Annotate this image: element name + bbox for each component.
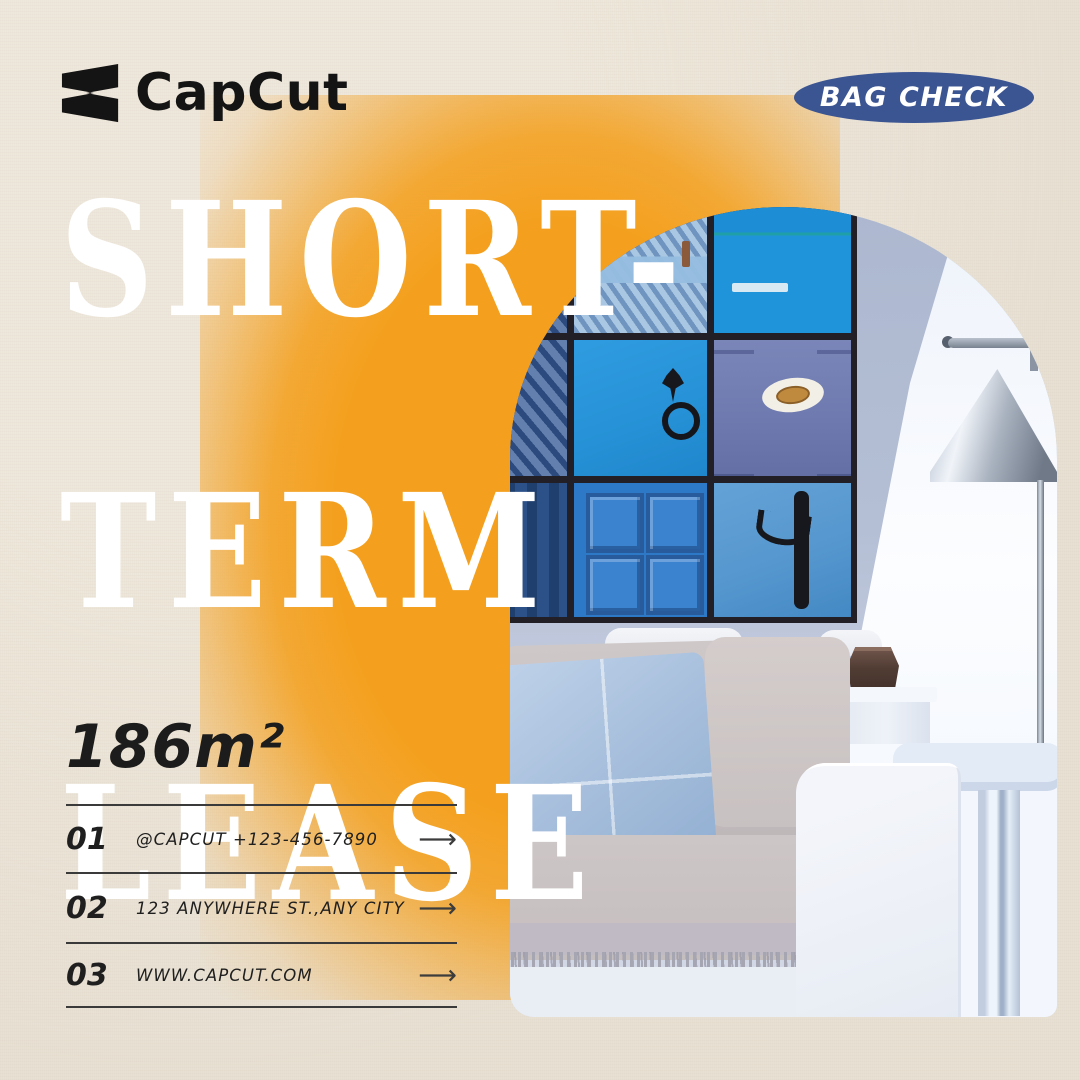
- row-text: 123 ANYWHERE ST.,ANY CITY: [128, 899, 418, 918]
- right-arrow-icon[interactable]: ⟶: [418, 960, 457, 991]
- row-number: 02: [66, 891, 128, 926]
- door-handle-plate: [794, 491, 809, 609]
- contact-row-2[interactable]: 02 123 ANYWHERE ST.,ANY CITY ⟶: [66, 874, 457, 944]
- door-tile-6: [714, 340, 851, 476]
- headline-line2: TERM: [60, 460, 552, 645]
- lamp-pole: [1037, 480, 1044, 770]
- headline-line1: SHORT-: [60, 168, 692, 353]
- door-tile-3: [714, 207, 851, 333]
- c-table-glass-leg: [978, 790, 1020, 1016]
- contact-row-3[interactable]: 03 WWW.CAPCUT.COM ⟶: [66, 944, 457, 1008]
- door-molding: [714, 350, 754, 476]
- area-size-label: 186m²: [66, 712, 285, 782]
- right-arrow-icon[interactable]: ⟶: [418, 824, 457, 855]
- capcut-logo-icon: [60, 62, 122, 124]
- bag-check-badge-label: BAG CHECK: [820, 82, 1008, 113]
- sofa-base: [510, 967, 820, 1017]
- contact-list: 01 @CAPCUT +123-456-7890 ⟶ 02 123 ANYWHE…: [66, 804, 457, 1008]
- right-arrow-icon[interactable]: ⟶: [418, 893, 457, 924]
- capcut-logo[interactable]: CapCut: [60, 62, 349, 124]
- row-text: @CAPCUT +123-456-7890: [128, 830, 418, 849]
- capcut-logo-text: CapCut: [135, 63, 349, 123]
- sofa-arm: [796, 763, 961, 1017]
- poster-canvas: CapCut BAG CHECK: [0, 0, 1080, 1080]
- door-molding: [817, 350, 851, 476]
- door-handle-bar: [732, 283, 788, 292]
- bag-check-badge[interactable]: BAG CHECK: [794, 72, 1034, 123]
- row-text: WWW.CAPCUT.COM: [128, 966, 418, 985]
- lamp-stem: [1030, 347, 1038, 371]
- contact-row-1[interactable]: 01 @CAPCUT +123-456-7890 ⟶: [66, 806, 457, 874]
- door-tile-9: [714, 483, 851, 617]
- row-number: 03: [66, 958, 128, 993]
- row-number: 01: [66, 822, 128, 857]
- door-emblem: [760, 374, 826, 415]
- lamp-arm: [948, 338, 1057, 348]
